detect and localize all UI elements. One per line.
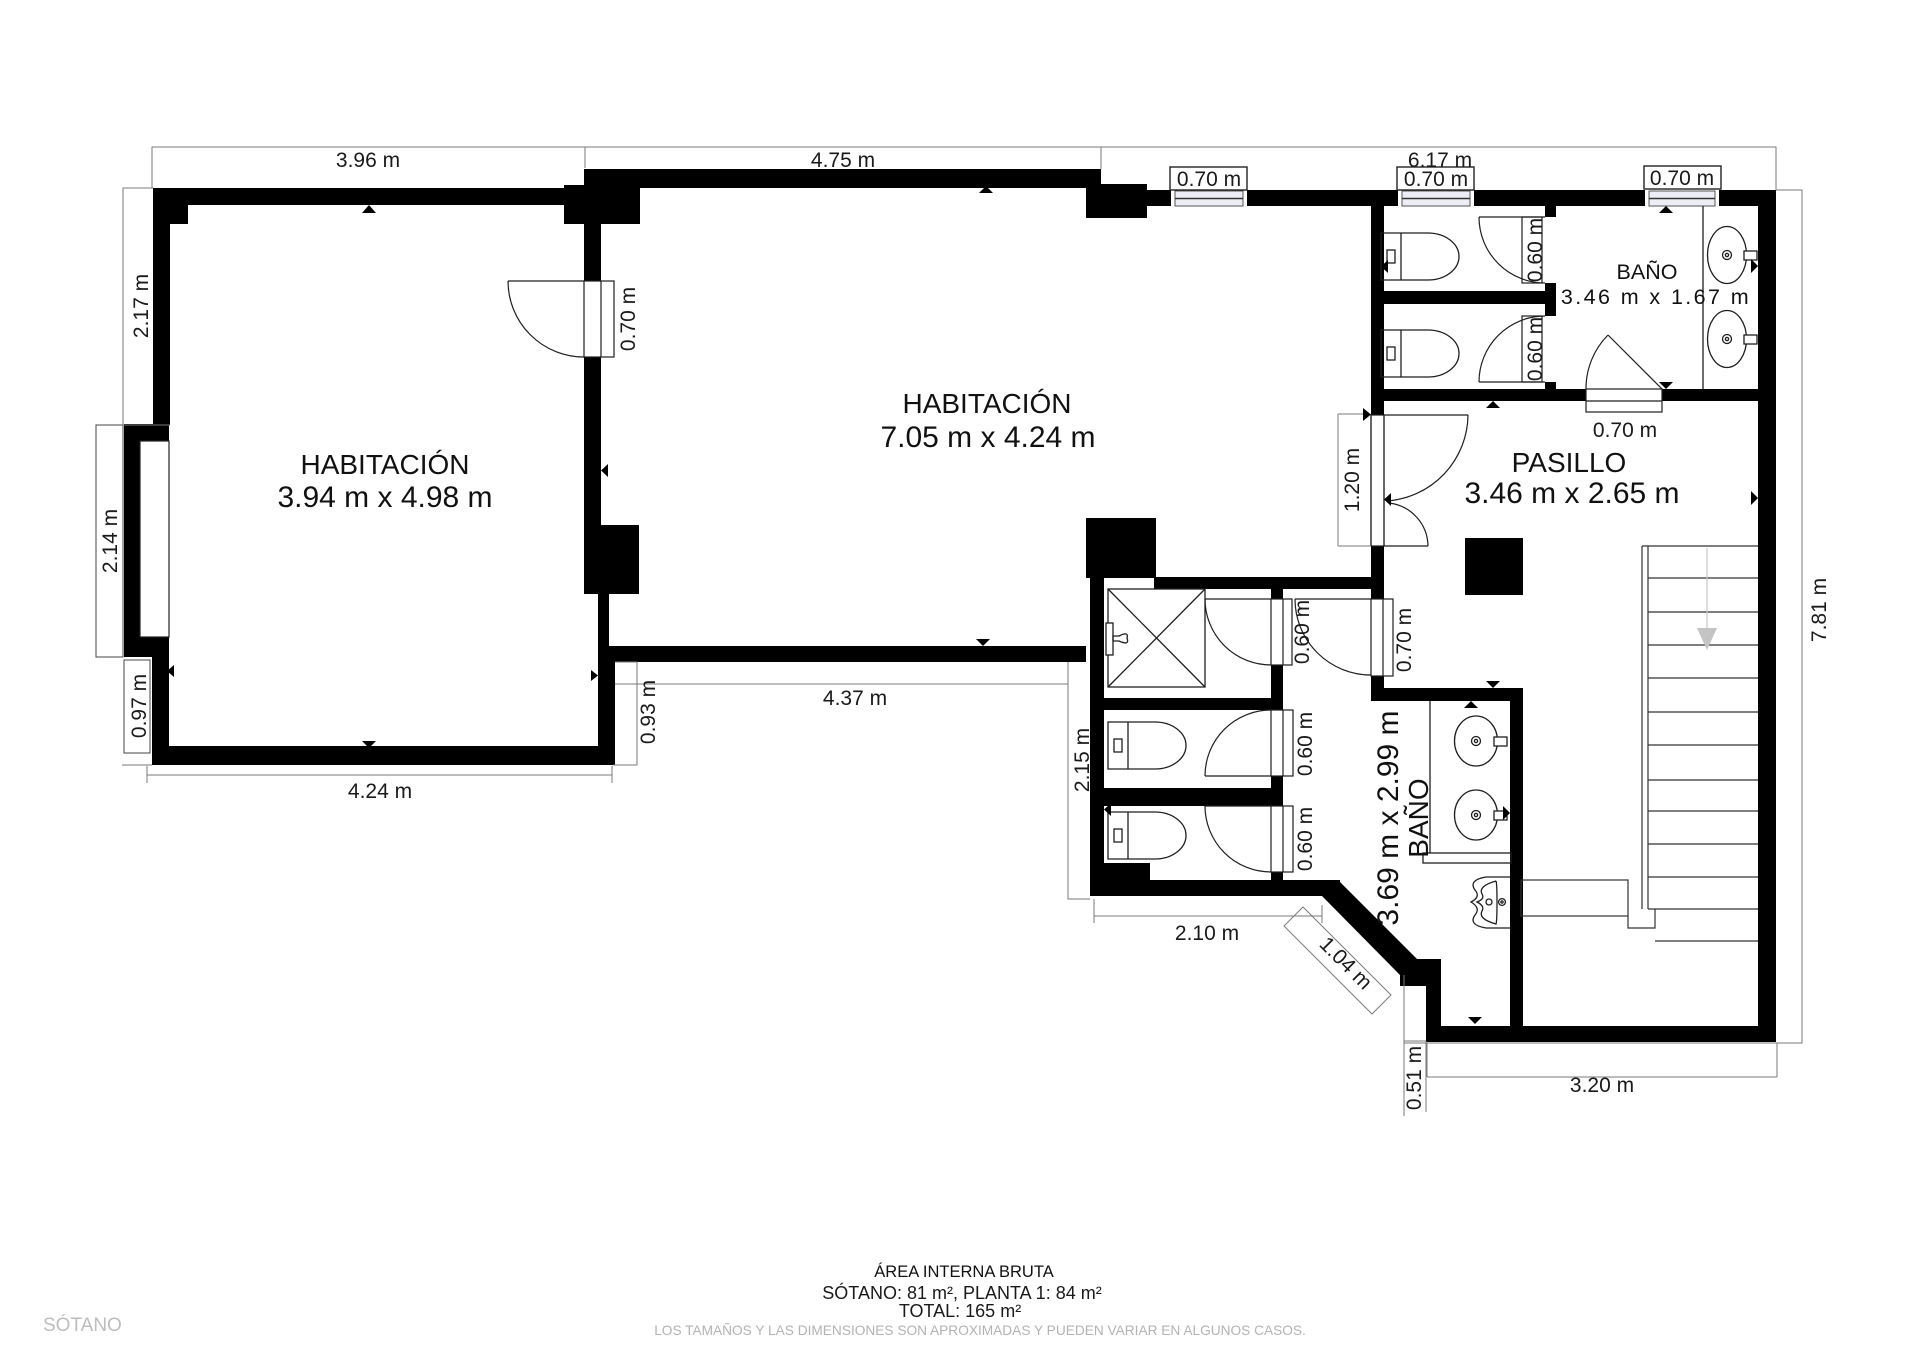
svg-text:0.60 m: 0.60 m — [1291, 600, 1314, 664]
svg-text:BAÑO: BAÑO — [1403, 778, 1434, 857]
svg-text:0.70 m: 0.70 m — [617, 287, 640, 351]
svg-text:3.46 m x 1.67 m: 3.46 m x 1.67 m — [1561, 285, 1751, 309]
svg-text:1.20 m: 1.20 m — [1341, 448, 1364, 512]
svg-text:HABITACIÓN: HABITACIÓN — [902, 388, 1071, 419]
svg-text:6.17 m: 6.17 m — [1408, 149, 1472, 172]
svg-text:3.20 m: 3.20 m — [1570, 1074, 1634, 1097]
svg-text:0.60 m: 0.60 m — [1294, 712, 1317, 776]
svg-text:SÓTANO: 81 m², PLANTA 1: 84 m²: SÓTANO: 81 m², PLANTA 1: 84 m² — [822, 1282, 1101, 1303]
svg-text:7.05 m x 4.24 m: 7.05 m x 4.24 m — [880, 421, 1095, 454]
svg-text:0.70 m: 0.70 m — [1650, 167, 1714, 190]
svg-text:2.15 m: 2.15 m — [1071, 728, 1094, 792]
svg-text:4.75 m: 4.75 m — [811, 149, 875, 172]
svg-text:3.69 m x 2.99 m: 3.69 m x 2.99 m — [1372, 710, 1405, 925]
svg-text:4.24 m: 4.24 m — [348, 780, 412, 803]
svg-text:0.97 m: 0.97 m — [128, 674, 151, 738]
svg-text:3.94 m x 4.98 m: 3.94 m x 4.98 m — [277, 481, 492, 514]
svg-text:2.10 m: 2.10 m — [1175, 922, 1239, 945]
svg-text:7.81 m: 7.81 m — [1808, 578, 1831, 642]
svg-text:0.60 m: 0.60 m — [1524, 317, 1547, 381]
svg-text:TOTAL: 165 m²: TOTAL: 165 m² — [899, 1301, 1021, 1321]
svg-text:BAÑO: BAÑO — [1617, 259, 1678, 284]
svg-text:0.51 m: 0.51 m — [1403, 1046, 1426, 1110]
svg-text:ÁREA INTERNA BRUTA: ÁREA INTERNA BRUTA — [874, 1262, 1053, 1281]
svg-text:0.60 m: 0.60 m — [1294, 807, 1317, 871]
svg-text:SÓTANO: SÓTANO — [43, 1314, 122, 1336]
svg-text:3.46 m x 2.65 m: 3.46 m x 2.65 m — [1464, 477, 1679, 510]
svg-text:2.17 m: 2.17 m — [130, 274, 153, 338]
svg-text:0.70 m: 0.70 m — [1393, 608, 1416, 672]
svg-text:HABITACIÓN: HABITACIÓN — [300, 449, 469, 480]
svg-text:0.70 m: 0.70 m — [1177, 168, 1241, 191]
svg-text:LOS TAMAÑOS Y LAS DIMENSIONES: LOS TAMAÑOS Y LAS DIMENSIONES SON APROXI… — [654, 1323, 1306, 1338]
svg-text:0.93 m: 0.93 m — [637, 680, 660, 744]
svg-text:0.70 m: 0.70 m — [1593, 419, 1657, 442]
svg-text:3.96 m: 3.96 m — [336, 149, 400, 172]
svg-text:2.14 m: 2.14 m — [99, 509, 122, 573]
svg-text:4.37 m: 4.37 m — [823, 687, 887, 710]
svg-text:PASILLO: PASILLO — [1512, 447, 1627, 478]
svg-text:0.60 m: 0.60 m — [1524, 218, 1547, 282]
